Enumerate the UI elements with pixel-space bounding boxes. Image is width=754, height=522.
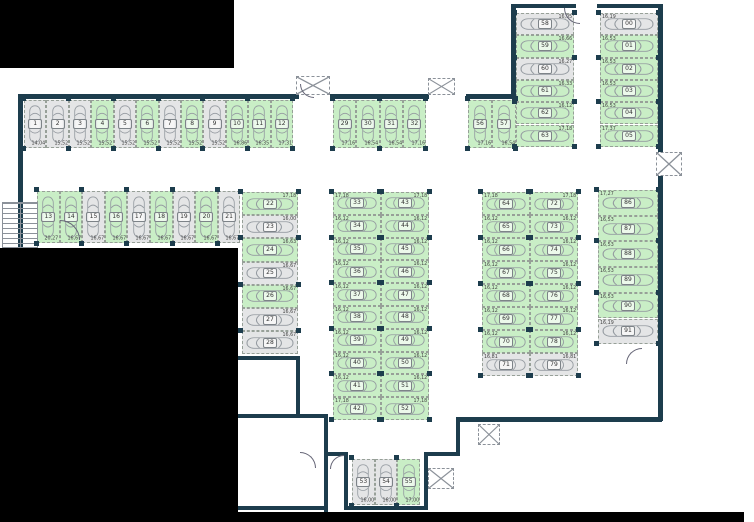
column-dot	[290, 96, 295, 101]
column-dot	[111, 96, 116, 101]
parking-stall[interactable]: 4716,12	[381, 283, 429, 306]
stall-number: 88	[621, 249, 635, 259]
stall-area-label: 16,67	[282, 333, 296, 338]
column-dot	[576, 281, 581, 286]
column-dot	[465, 96, 470, 101]
parking-stall[interactable]: 615,52	[136, 100, 158, 148]
column-dot	[594, 238, 599, 243]
parking-stall[interactable]: 2416,63	[242, 238, 298, 261]
parking-stall[interactable]: 1516,67	[82, 191, 105, 243]
parking-stall[interactable]: 6916,12	[482, 307, 530, 330]
stall-number: 61	[538, 86, 552, 96]
stall-number: 5	[118, 119, 132, 129]
stall-number: 22	[263, 199, 277, 209]
parking-stall[interactable]: 5416,00	[375, 459, 398, 505]
column-dot	[329, 417, 334, 422]
parking-stall[interactable]: 5716,54	[492, 100, 516, 148]
column-dot	[656, 144, 661, 149]
column-dot	[572, 144, 577, 149]
shaft-icon	[656, 152, 682, 176]
stall-area-label: 16,12	[335, 376, 349, 381]
stall-number: 25	[263, 268, 277, 278]
stall-number: 43	[398, 198, 412, 208]
column-dot	[329, 280, 334, 285]
stall-area-label: 16,33	[558, 82, 572, 87]
stall-number: 16	[109, 212, 123, 222]
parking-stall[interactable]: 0016,19	[600, 13, 658, 35]
column-dot	[290, 146, 295, 151]
stall-area-label: 16,53	[600, 269, 614, 274]
stall-area-label: 16,12	[562, 332, 576, 337]
column-dot	[576, 327, 581, 332]
stall-number: 01	[622, 41, 636, 51]
column-dot	[512, 99, 517, 104]
parking-stall[interactable]: 6016,27	[516, 58, 574, 80]
column-dot	[594, 341, 599, 346]
column-dot	[512, 144, 517, 149]
column-dot	[572, 10, 577, 15]
parking-stall[interactable]: 5617,16	[468, 100, 492, 148]
column-dot	[296, 235, 301, 240]
column-dot	[423, 146, 428, 151]
stall-number: 47	[398, 290, 412, 300]
stall-number: 2	[51, 119, 65, 129]
column-dot	[526, 281, 531, 286]
stall-number: 05	[622, 131, 636, 141]
column-dot	[329, 189, 334, 194]
column-dot	[200, 96, 205, 101]
column-dot	[465, 146, 470, 151]
column-dot	[377, 371, 382, 376]
parking-stall[interactable]: 4416,12	[381, 215, 429, 238]
stall-area-label: 16,12	[335, 240, 349, 245]
parking-stall[interactable]: 6516,12	[482, 215, 530, 238]
stall-number: 30	[361, 119, 375, 129]
shaft-icon	[478, 424, 500, 445]
column-dot	[296, 189, 301, 194]
column-dot	[156, 146, 161, 151]
parking-stall[interactable]: 9016,53	[598, 293, 658, 319]
stall-area-label: 16,12	[413, 217, 427, 222]
parking-stall[interactable]: 1116,35	[248, 100, 270, 148]
stall-number: 48	[398, 312, 412, 322]
column-dot	[596, 10, 601, 15]
stall-number: 55	[402, 477, 416, 487]
column-dot	[423, 96, 428, 101]
shaft-icon	[428, 468, 454, 489]
stall-number: 8	[185, 119, 199, 129]
column-dot	[596, 144, 601, 149]
column-dot	[34, 187, 39, 192]
stall-number: 56	[473, 119, 487, 129]
stall-number: 63	[538, 131, 552, 141]
stall-area-label: 16,53	[600, 243, 614, 248]
parking-stall[interactable]: 315,52	[69, 100, 91, 148]
void-region	[238, 512, 744, 522]
parking-stall[interactable]: 1217,31	[271, 100, 293, 148]
stall-number: 52	[398, 404, 412, 414]
stall-number: 62	[538, 108, 552, 118]
stall-area-label: 16,12	[335, 285, 349, 290]
column-dot	[66, 96, 71, 101]
stall-number: 57	[497, 119, 511, 129]
stall-number: 64	[499, 199, 513, 209]
stall-area-label: 16,12	[413, 376, 427, 381]
column-dot	[124, 241, 129, 246]
column-dot	[478, 327, 483, 332]
parking-stall[interactable]: 4116,12	[333, 374, 381, 397]
column-dot	[394, 503, 399, 508]
stall-area-label: 16,54	[388, 141, 402, 146]
parking-stall[interactable]: 6417,18	[482, 192, 530, 215]
stall-area-label: 20,27	[45, 236, 59, 241]
column-dot	[238, 282, 243, 287]
door-swing-icon	[330, 455, 344, 469]
stall-area-label: 17,18	[282, 194, 296, 199]
column-dot	[594, 290, 599, 295]
stall-number: 45	[398, 244, 412, 254]
stall-area-label: 16,12	[484, 309, 498, 314]
parking-stall[interactable]: 3916,12	[333, 329, 381, 352]
stall-area-label: 16,12	[562, 240, 576, 245]
parking-stall[interactable]: 8716,53	[598, 216, 658, 242]
parking-stall[interactable]: 4516,12	[381, 238, 429, 261]
parking-stall[interactable]: 8617,27	[598, 190, 658, 216]
stairs-icon	[2, 202, 38, 248]
column-dot	[572, 55, 577, 60]
stall-area-label: 16,63	[282, 240, 296, 245]
stall-area-label: 16,67	[282, 287, 296, 292]
parking-stall[interactable]: 915,52	[203, 100, 225, 148]
parking-stall[interactable]: 7716,12	[530, 307, 578, 330]
column-dot	[427, 326, 432, 331]
parking-stall[interactable]: 6716,12	[482, 261, 530, 284]
column-dot	[349, 455, 354, 460]
stall-number: 49	[398, 335, 412, 345]
parking-stall[interactable]: 3217,16	[403, 100, 426, 148]
stall-area-label: 16,53	[602, 37, 616, 42]
stall-number: 68	[499, 291, 513, 301]
column-dot	[656, 187, 661, 192]
parking-stall[interactable]: 2016,67	[195, 191, 218, 243]
column-dot	[377, 235, 382, 240]
shaft-icon	[428, 78, 455, 95]
column-dot	[156, 96, 161, 101]
wall-segment	[466, 94, 515, 99]
parking-stall[interactable]: 3716,12	[333, 283, 381, 306]
stall-number: 71	[499, 360, 513, 370]
parking-stall[interactable]: 2316,00	[242, 215, 298, 238]
column-dot	[656, 99, 661, 104]
column-dot	[656, 341, 661, 346]
stall-number: 79	[547, 360, 561, 370]
parking-stall[interactable]: 0517,37	[600, 125, 658, 147]
stall-area-label: 16,67	[282, 264, 296, 269]
column-dot	[478, 235, 483, 240]
stall-number: 74	[547, 245, 561, 255]
parking-stall[interactable]: 2816,67	[242, 331, 298, 354]
stall-area-label: 16,35	[256, 141, 270, 146]
wall-segment	[238, 356, 300, 360]
stall-number: 69	[499, 314, 513, 324]
stall-number: 87	[621, 224, 635, 234]
parking-stall[interactable]: 2917,16	[333, 100, 356, 148]
parking-stall[interactable]: 0316,53	[600, 80, 658, 102]
column-dot	[478, 281, 483, 286]
column-dot	[238, 189, 243, 194]
parking-stall[interactable]: 6216,12	[516, 102, 574, 124]
stall-number: 75	[547, 268, 561, 278]
parking-stall[interactable]: 7616,12	[530, 284, 578, 307]
stall-number: 26	[263, 291, 277, 301]
parking-stall[interactable]: 5316,00	[352, 459, 375, 505]
parking-stall[interactable]: 4616,12	[381, 260, 429, 283]
column-dot	[512, 55, 517, 60]
stall-area-label: 16,12	[558, 104, 572, 109]
parking-stall[interactable]: 1916,67	[173, 191, 196, 243]
stall-number: 42	[350, 404, 364, 414]
parking-stall[interactable]: 3116,54	[380, 100, 403, 148]
parking-stall[interactable]: 7316,12	[530, 215, 578, 238]
parking-stall[interactable]: 5517,00	[397, 459, 420, 505]
column-dot	[576, 373, 581, 378]
stall-number: 59	[538, 41, 552, 51]
column-dot	[377, 146, 382, 151]
parking-stall[interactable]: 114,04	[24, 100, 46, 148]
stall-area-label: 16,53	[602, 104, 616, 109]
column-dot	[427, 235, 432, 240]
column-dot	[34, 241, 39, 246]
column-dot	[526, 235, 531, 240]
stall-area-label: 16,12	[562, 263, 576, 268]
stall-number: 60	[538, 64, 552, 74]
stall-area-label: 16,12	[335, 217, 349, 222]
parking-stall[interactable]: 6816,12	[482, 284, 530, 307]
wall-segment	[344, 506, 428, 510]
column-dot	[170, 187, 175, 192]
parking-stall[interactable]: 7916,81	[530, 353, 578, 376]
column-dot	[245, 96, 250, 101]
parking-stall[interactable]: 1016,86	[226, 100, 248, 148]
parking-stall[interactable]: 3516,12	[333, 238, 381, 261]
stall-number: 73	[547, 222, 561, 232]
column-dot	[238, 328, 243, 333]
stall-area-label: 16,12	[484, 263, 498, 268]
parking-stall[interactable]: 4016,12	[333, 352, 381, 375]
stall-area-label: 16,12	[413, 308, 427, 313]
stall-number: 54	[379, 477, 393, 487]
stall-number: 28	[263, 338, 277, 348]
stall-area-label: 15,52	[121, 141, 135, 146]
stall-area-label: 17,18	[335, 399, 349, 404]
column-dot	[526, 189, 531, 194]
stall-number: 72	[547, 199, 561, 209]
parking-stall[interactable]: 6317,18	[516, 125, 574, 147]
parking-stall[interactable]: 4317,18	[381, 192, 429, 215]
parking-stall[interactable]: 5916,66	[516, 35, 574, 57]
parking-stall[interactable]: 7516,12	[530, 261, 578, 284]
stall-number: 76	[547, 291, 561, 301]
stall-area-label: 16,81	[562, 355, 576, 360]
parking-stall[interactable]: 0116,53	[600, 35, 658, 57]
stall-area-label: 16,12	[335, 354, 349, 359]
column-dot	[512, 10, 517, 15]
parking-stall[interactable]: 0216,53	[600, 58, 658, 80]
column-dot	[478, 189, 483, 194]
stall-number: 18	[154, 212, 168, 222]
wall-segment	[296, 356, 300, 418]
parking-stall[interactable]: 0416,53	[600, 102, 658, 124]
parking-stall[interactable]: 4816,12	[381, 306, 429, 329]
stall-area-label: 16,12	[413, 331, 427, 336]
stall-number: 77	[547, 314, 561, 324]
stall-number: 78	[547, 337, 561, 347]
stall-number: 13	[41, 212, 55, 222]
parking-stall[interactable]: 2217,18	[242, 192, 298, 215]
stall-number: 89	[621, 275, 635, 285]
stall-area-label: 16,00	[360, 498, 374, 503]
parking-stall[interactable]: 515,52	[114, 100, 136, 148]
parking-stall[interactable]: 3816,12	[333, 306, 381, 329]
stall-number: 00	[622, 19, 636, 29]
parking-stall[interactable]: 4217,18	[333, 397, 381, 420]
stall-area-label: 17,16	[342, 141, 356, 146]
stall-area-label: 16,12	[562, 217, 576, 222]
parking-stall[interactable]: 7416,12	[530, 238, 578, 261]
stall-area-label: 16,67	[135, 236, 149, 241]
stall-number: 90	[621, 301, 635, 311]
parking-stall[interactable]: 6116,33	[516, 80, 574, 102]
stall-area-label: 16,27	[558, 60, 572, 65]
parking-stall[interactable]: 6616,12	[482, 238, 530, 261]
stall-number: 1	[28, 119, 42, 129]
parking-stall[interactable]: 7217,18	[530, 192, 578, 215]
stall-area-label: 16,19	[602, 15, 616, 20]
stall-area-label: 14,04	[32, 141, 46, 146]
column-dot	[79, 187, 84, 192]
column-dot	[377, 417, 382, 422]
parking-stall[interactable]: 2116,67	[218, 191, 241, 243]
stall-area-label: 16,53	[602, 60, 616, 65]
column-dot	[427, 189, 432, 194]
parking-stall[interactable]: 5016,12	[381, 352, 429, 375]
column-dot	[596, 55, 601, 60]
column-dot	[200, 146, 205, 151]
column-dot	[526, 327, 531, 332]
parking-stall[interactable]: 715,52	[159, 100, 181, 148]
column-dot	[79, 241, 84, 246]
stall-area-label: 17,16	[477, 141, 491, 146]
parking-stall[interactable]: 4916,12	[381, 329, 429, 352]
column-dot	[238, 235, 243, 240]
parking-stall[interactable]: 7016,12	[482, 330, 530, 353]
parking-stall[interactable]: 8916,53	[598, 267, 658, 293]
stall-area-label: 16,67	[90, 236, 104, 241]
parking-stall[interactable]: 7116,81	[482, 353, 530, 376]
stall-area-label: 16,53	[600, 295, 614, 300]
stall-area-label: 17,18	[562, 194, 576, 199]
stall-area-label: 17,18	[335, 194, 349, 199]
void-region	[0, 0, 234, 68]
parking-stall[interactable]: 5816,05	[516, 13, 574, 35]
parking-stall[interactable]: 2716,67	[242, 308, 298, 331]
parking-stall[interactable]: 3016,54	[356, 100, 379, 148]
parking-stall[interactable]: 3416,12	[333, 215, 381, 238]
parking-stall[interactable]: 7816,12	[530, 330, 578, 353]
column-dot	[111, 146, 116, 151]
stall-number: 50	[398, 358, 412, 368]
stall-number: 11	[252, 119, 266, 129]
stall-area-label: 16,12	[562, 286, 576, 291]
parking-stall[interactable]: 5116,12	[381, 374, 429, 397]
parking-stall[interactable]: 3317,18	[333, 192, 381, 215]
stall-number: 58	[538, 19, 552, 29]
stall-number: 23	[263, 222, 277, 232]
stall-number: 31	[384, 119, 398, 129]
stall-number: 7	[163, 119, 177, 129]
wall-segment	[344, 452, 348, 510]
stall-area-label: 16,12	[413, 240, 427, 245]
stall-area-label: 16,12	[413, 285, 427, 290]
stall-number: 34	[350, 221, 364, 231]
parking-stall[interactable]: 3616,12	[333, 260, 381, 283]
stall-area-label: 17,00	[405, 498, 419, 503]
stall-number: 03	[622, 86, 636, 96]
stall-number: 10	[230, 119, 244, 129]
stall-number: 70	[499, 337, 513, 347]
stall-number: 86	[621, 198, 635, 208]
column-dot	[526, 373, 531, 378]
stall-area-label: 17,18	[413, 399, 427, 404]
column-dot	[377, 96, 382, 101]
column-dot	[656, 10, 661, 15]
stall-number: 38	[350, 312, 364, 322]
stall-number: 37	[350, 290, 364, 300]
parking-stall[interactable]: 9116,19	[598, 319, 658, 345]
parking-stall[interactable]: 2616,67	[242, 285, 298, 308]
stall-number: 46	[398, 267, 412, 277]
parking-stall[interactable]: 5217,18	[381, 397, 429, 420]
column-dot	[594, 187, 599, 192]
parking-stall[interactable]: 1616,67	[105, 191, 128, 243]
parking-stall[interactable]: 1716,67	[127, 191, 150, 243]
stall-area-label: 16,12	[484, 217, 498, 222]
stall-number: 44	[398, 221, 412, 231]
stall-area-label: 16,53	[602, 82, 616, 87]
stall-area-label: 15,52	[211, 141, 225, 146]
stall-area-label: 16,12	[562, 309, 576, 314]
stall-area-label: 17,18	[413, 194, 427, 199]
parking-stall[interactable]: 215,52	[46, 100, 68, 148]
parking-stall[interactable]: 1816,67	[150, 191, 173, 243]
column-dot	[394, 455, 399, 460]
door-swing-icon	[300, 84, 314, 98]
parking-stall[interactable]: 1320,27	[37, 191, 60, 243]
parking-stall[interactable]: 815,52	[181, 100, 203, 148]
stall-area-label: 15,52	[166, 141, 180, 146]
column-dot	[170, 241, 175, 246]
stall-number: 39	[350, 335, 364, 345]
parking-stall[interactable]: 2516,67	[242, 262, 298, 285]
parking-stall[interactable]: 415,52	[91, 100, 113, 148]
stall-area-label: 16,67	[180, 236, 194, 241]
wall-segment	[324, 414, 328, 512]
void-region	[0, 248, 238, 522]
stall-area-label: 16,53	[600, 218, 614, 223]
column-dot	[427, 371, 432, 376]
parking-stall[interactable]: 8816,53	[598, 241, 658, 267]
stall-number: 15	[86, 212, 100, 222]
